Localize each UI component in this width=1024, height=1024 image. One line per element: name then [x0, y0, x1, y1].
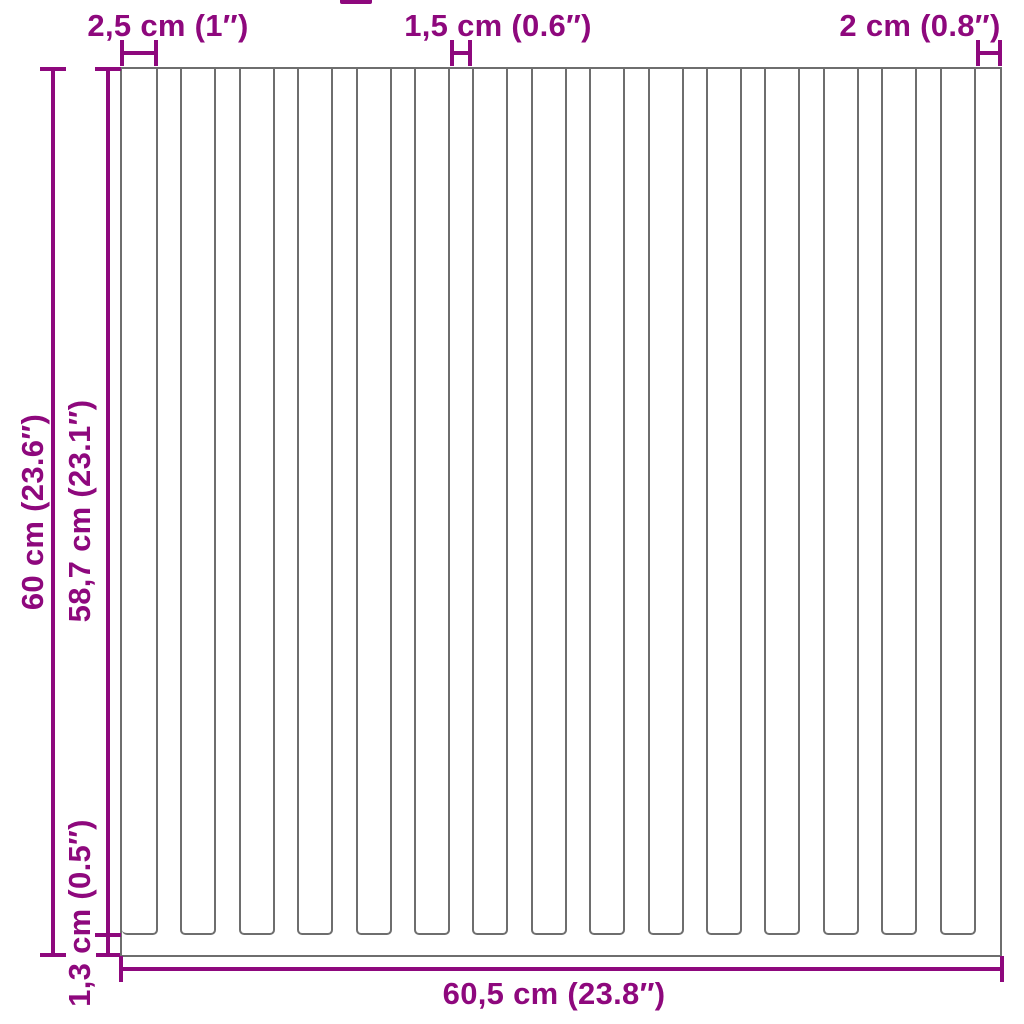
dim-line-total-height — [51, 67, 55, 957]
dim-line-slat-height — [106, 67, 110, 937]
panel-slat — [706, 69, 742, 935]
panel-slat — [940, 69, 976, 935]
dim-label-slat-height: 58,7 cm (23.1″) — [62, 400, 98, 623]
top-edge-artifact — [340, 0, 372, 4]
dim-label-bottom-rail-height: 1,3 cm (0.5″) — [62, 819, 98, 1007]
panel-slat — [648, 69, 684, 935]
panel-slat — [297, 69, 333, 935]
panel-slat — [531, 69, 567, 935]
dim-label-slat-gap: 1,5 cm (0.6″) — [404, 8, 592, 44]
panel-slat — [356, 69, 392, 935]
dim-line-total-width — [119, 967, 1004, 971]
panel-slat — [472, 69, 508, 935]
panel-slat — [881, 69, 917, 935]
panel-slat — [823, 69, 859, 935]
panel-slat — [414, 69, 450, 935]
panel-slat — [122, 69, 158, 935]
panel-slat — [589, 69, 625, 935]
dimension-diagram: 2,5 cm (1″) 1,5 cm (0.6″) 2 cm (0.8″) 60… — [0, 0, 1024, 1024]
panel — [120, 67, 1002, 957]
dim-label-total-width: 60,5 cm (23.8″) — [443, 976, 666, 1012]
panel-slat — [764, 69, 800, 935]
panel-slat — [239, 69, 275, 935]
dim-label-slat-width: 2,5 cm (1″) — [87, 8, 248, 44]
dim-bracket-bottom-rail — [106, 933, 110, 957]
panel-slat — [180, 69, 216, 935]
dim-label-total-height: 60 cm (23.6″) — [15, 414, 51, 610]
dim-label-end-stile-width: 2 cm (0.8″) — [839, 8, 1000, 44]
